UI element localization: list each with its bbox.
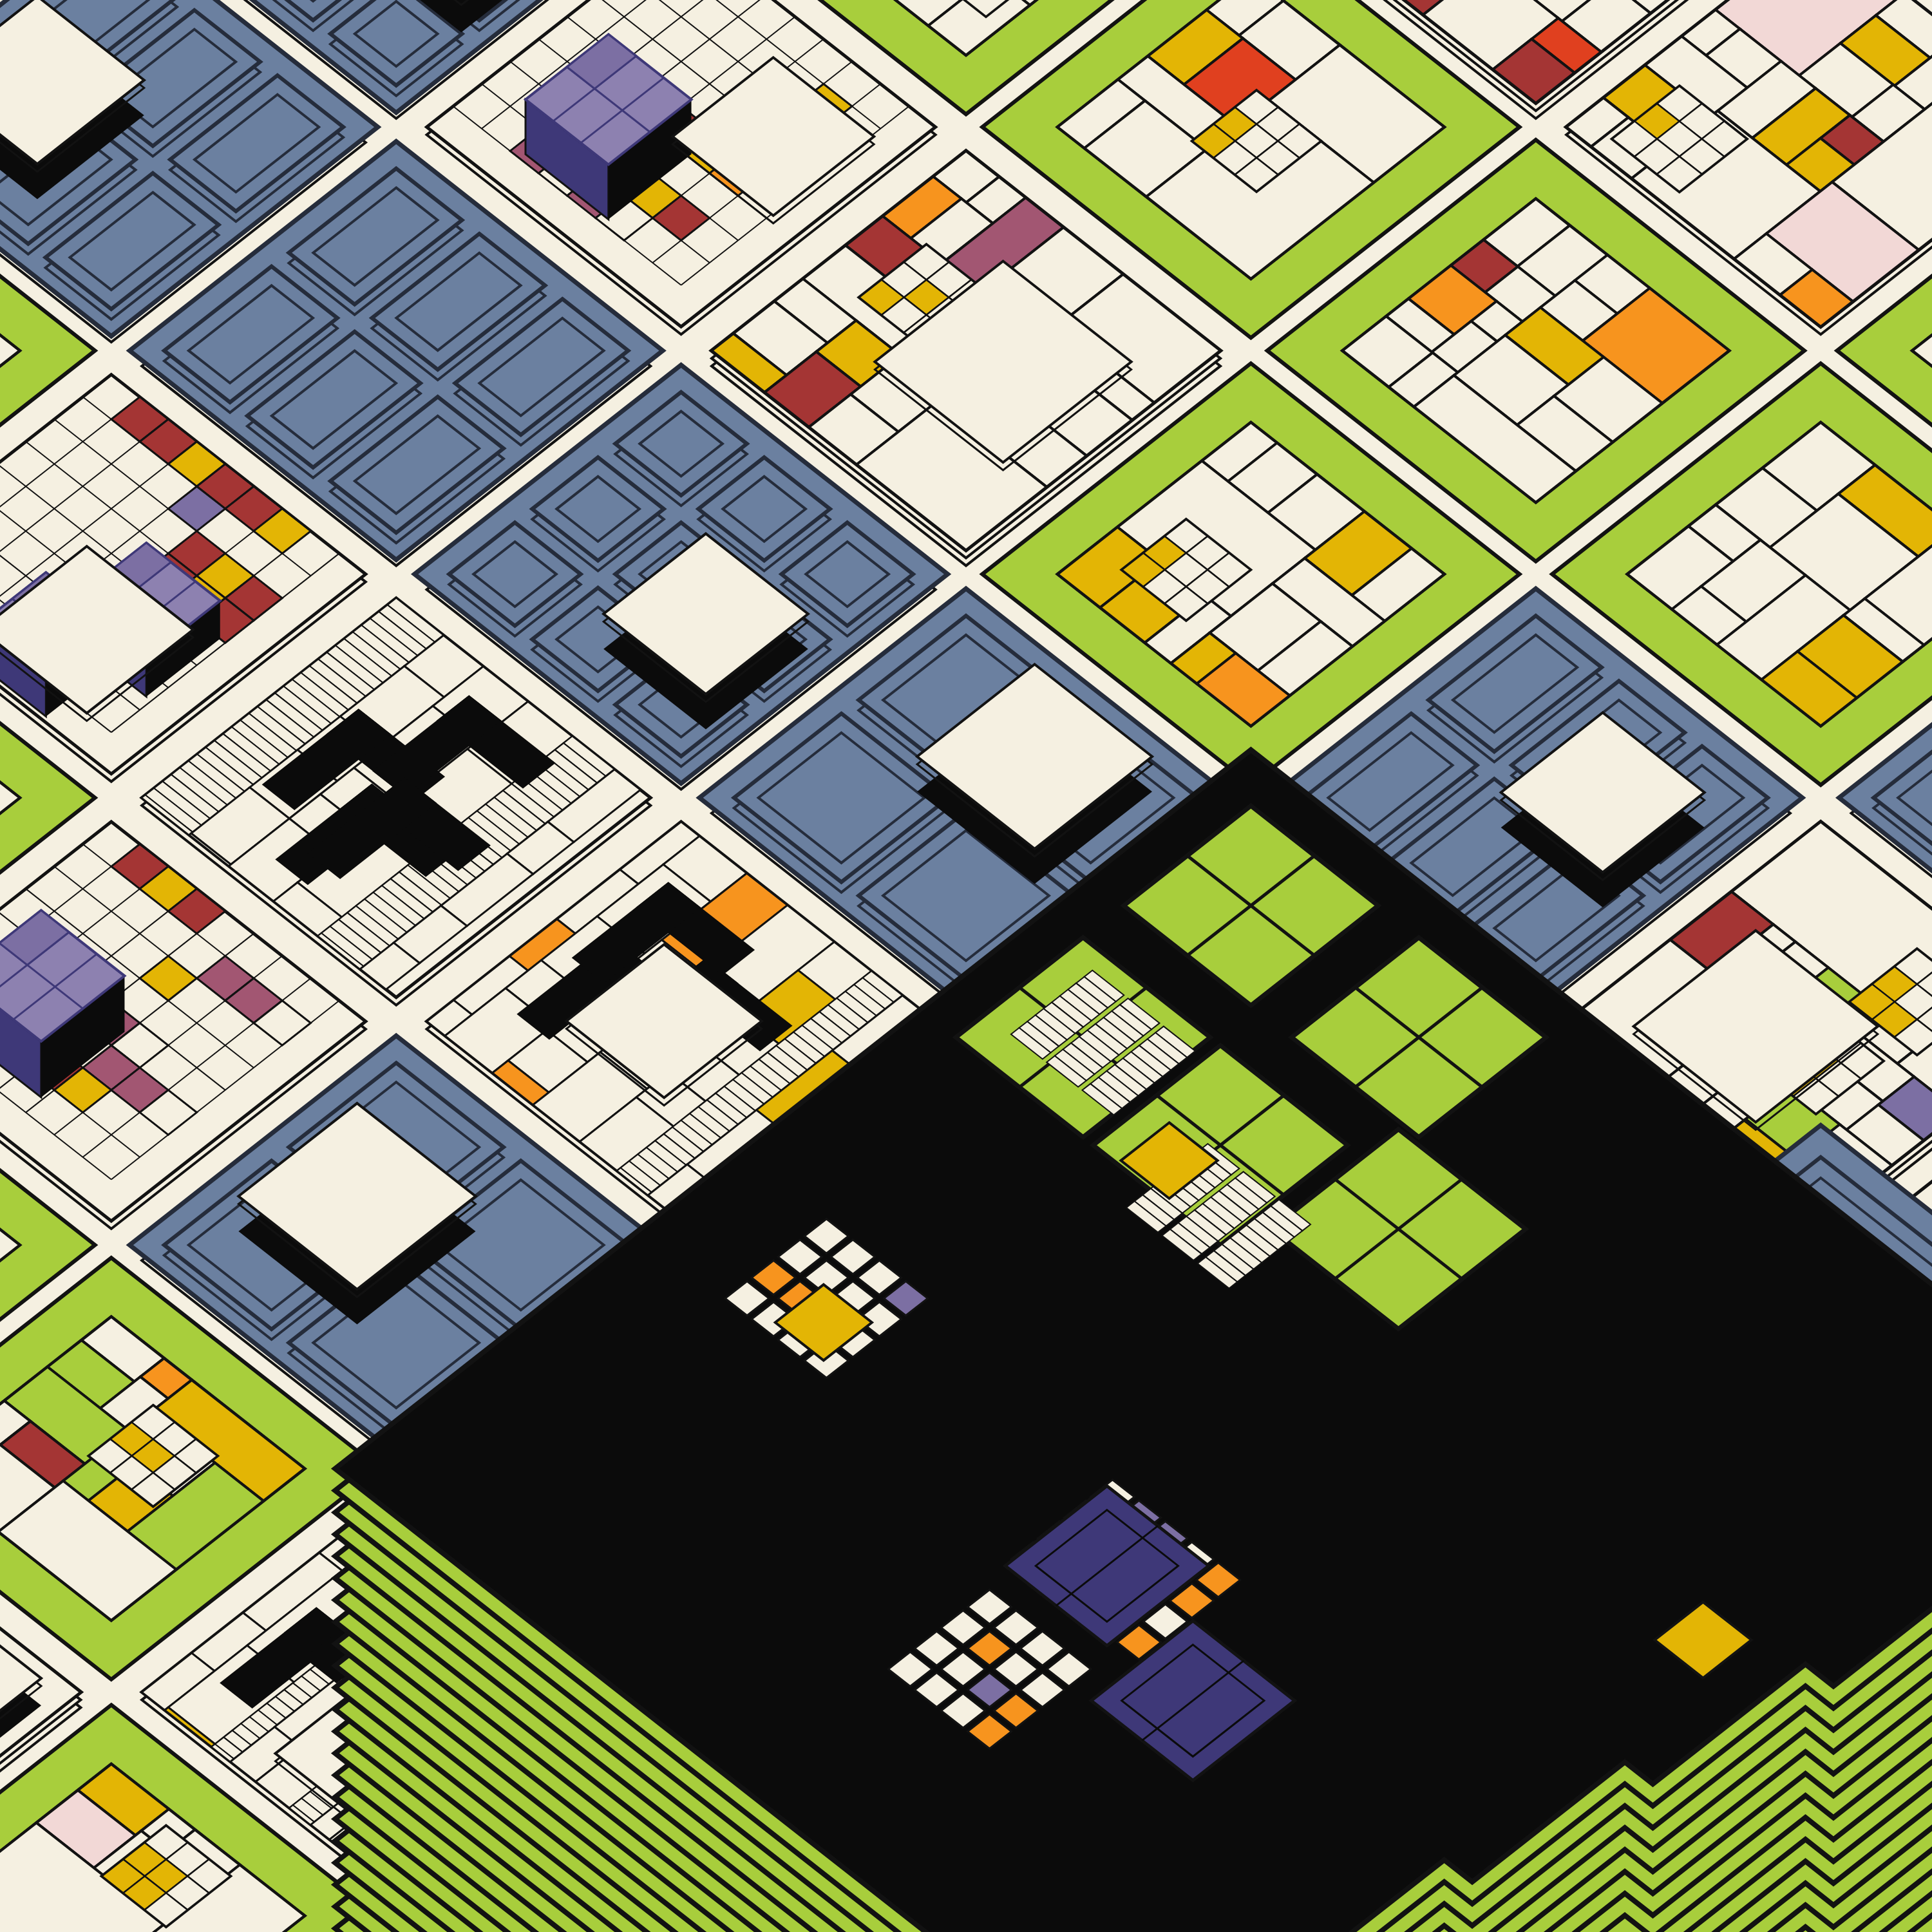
isometric-city-artwork-canvas xyxy=(0,0,1932,1932)
artwork-stage xyxy=(0,0,1932,1932)
